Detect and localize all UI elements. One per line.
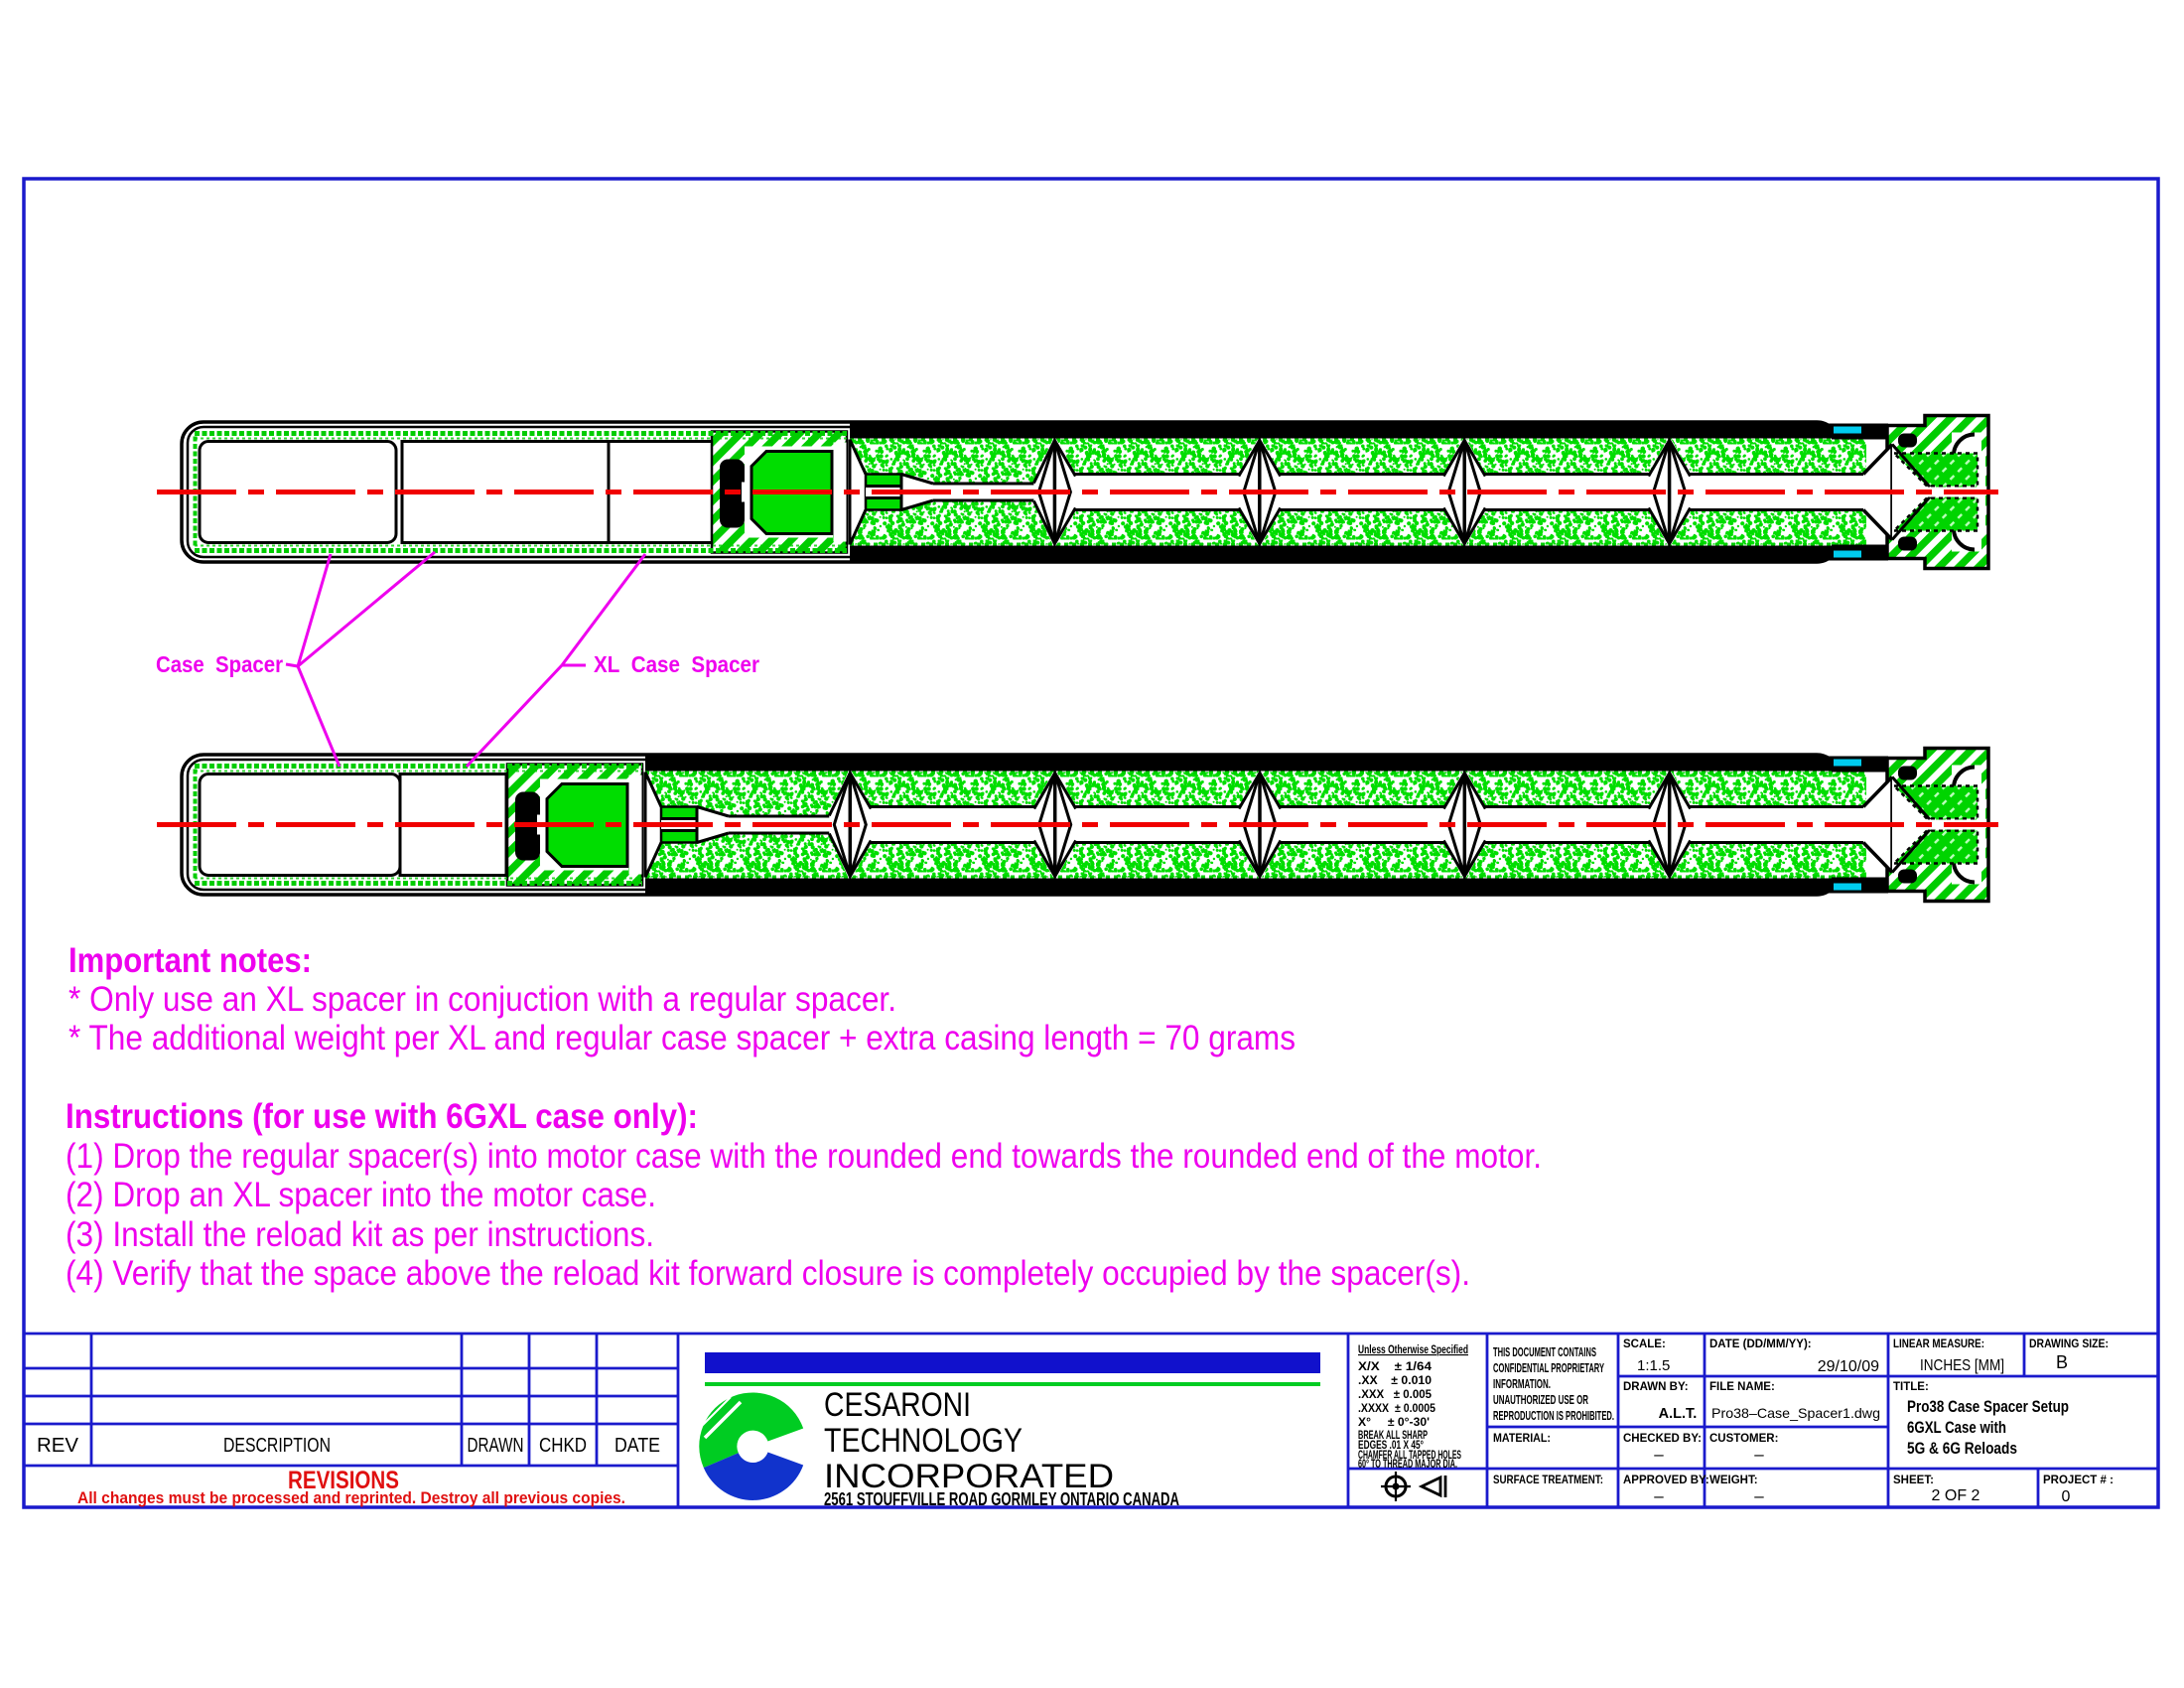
svg-text:Pro38–Case_Spacer1.dwg: Pro38–Case_Spacer1.dwg [1711,1405,1880,1421]
svg-text:CHECKED BY:: CHECKED BY: [1623,1433,1702,1445]
svg-text:DRAWING SIZE:: DRAWING SIZE: [2029,1338,2109,1350]
svg-text:SCALE:: SCALE: [1623,1338,1666,1350]
svg-text:APPROVED BY:: APPROVED BY: [1623,1475,1709,1486]
svg-text:(4) Verify that the space abov: (4) Verify that the space above the relo… [66,1254,1470,1293]
svg-text:60° TO THREAD MAJOR DIA.: 60° TO THREAD MAJOR DIA. [1358,1459,1457,1471]
svg-text:Unless Otherwise Specified: Unless Otherwise Specified [1358,1344,1468,1356]
svg-text:CONFIDENTIAL PROPRIETARY: CONFIDENTIAL PROPRIETARY [1493,1360,1604,1375]
svg-text:(2) Drop an XL spacer into the: (2) Drop an XL spacer into the motor cas… [66,1176,656,1214]
svg-text:MATERIAL:: MATERIAL: [1493,1433,1551,1445]
svg-text:–: – [1654,1486,1664,1505]
svg-text:INFORMATION.: INFORMATION. [1493,1376,1551,1391]
svg-text:CUSTOMER:: CUSTOMER: [1709,1433,1778,1445]
svg-text:B: B [2056,1352,2068,1372]
svg-text:TECHNOLOGY: TECHNOLOGY [824,1422,1023,1460]
svg-text:DRAWN BY:: DRAWN BY: [1623,1381,1689,1393]
svg-text:INCHES [MM]: INCHES [MM] [1920,1357,2004,1374]
svg-text:6GXL Case with: 6GXL Case with [1907,1418,2006,1437]
svg-text:X/X ± 1/64: X/X ± 1/64 [1358,1361,1433,1373]
svg-text:0: 0 [2062,1488,2071,1505]
svg-text:PROJECT # :: PROJECT # : [2043,1475,2114,1486]
svg-text:(1) Drop the regular spacer(s): (1) Drop the regular spacer(s) into moto… [66,1137,1542,1176]
svg-text:DRAWN: DRAWN [468,1435,524,1457]
svg-text:Important notes:: Important notes: [68,941,312,980]
svg-text:–: – [1754,1486,1764,1505]
svg-text:(3) Install the reload kit as: (3) Install the reload kit as per instru… [66,1215,654,1254]
svg-text:.XXX ± 0.005: .XXX ± 0.005 [1358,1389,1433,1401]
svg-text:UNAUTHORIZED USE OR: UNAUTHORIZED USE OR [1493,1392,1588,1407]
svg-text:DATE: DATE [614,1435,660,1457]
svg-text:X° ± 0°-30': X° ± 0°-30' [1358,1417,1430,1429]
svg-text:DESCRIPTION: DESCRIPTION [223,1435,331,1457]
svg-text:Pro38 Case Spacer Setup: Pro38 Case Spacer Setup [1907,1397,2069,1416]
svg-text:Instructions (for use with 6GX: Instructions (for use with 6GXL case onl… [66,1097,698,1136]
svg-text:SURFACE TREATMENT:: SURFACE TREATMENT: [1493,1475,1603,1486]
svg-text:THIS DOCUMENT CONTAINS: THIS DOCUMENT CONTAINS [1493,1344,1596,1359]
svg-text:Case Spacer: Case Spacer [156,651,283,677]
svg-text:–: – [1654,1445,1664,1464]
svg-text:DATE (DD/MM/YY):: DATE (DD/MM/YY): [1709,1338,1812,1350]
svg-text:All changes must be processed: All changes must be processed and reprin… [77,1488,625,1507]
svg-text:XL Case Spacer: XL Case Spacer [594,651,759,677]
svg-text:REV: REV [37,1435,79,1457]
svg-text:.XX ± 0.010: .XX ± 0.010 [1358,1375,1432,1387]
svg-text:WEIGHT:: WEIGHT: [1709,1475,1758,1486]
svg-text:CHKD: CHKD [539,1435,587,1457]
svg-text:FILE NAME:: FILE NAME: [1709,1381,1775,1393]
svg-text:2 OF 2: 2 OF 2 [1932,1487,1980,1504]
svg-text:1:1.5: 1:1.5 [1637,1357,1670,1374]
svg-text:* Only use an XL spacer in con: * Only use an XL spacer in conjuction wi… [68,980,896,1019]
svg-text:SHEET:: SHEET: [1893,1475,1934,1486]
svg-text:–: – [1754,1445,1764,1464]
svg-text:* The additional weight per XL: * The additional weight per XL and regul… [68,1019,1296,1057]
svg-text:2561 STOUFFVILLE ROAD GORMLEY: 2561 STOUFFVILLE ROAD GORMLEY ONTARIO CA… [824,1488,1179,1509]
svg-text:TITLE:: TITLE: [1893,1381,1929,1393]
svg-text:A.L.T.: A.L.T. [1659,1406,1698,1422]
svg-text:REPRODUCTION IS PROHIBITED.: REPRODUCTION IS PROHIBITED. [1493,1408,1614,1423]
svg-text:LINEAR MEASURE:: LINEAR MEASURE: [1893,1338,1984,1350]
svg-text:CESARONI: CESARONI [824,1386,971,1424]
svg-text:5G & 6G Reloads: 5G & 6G Reloads [1907,1439,2017,1458]
svg-text:29/10/09: 29/10/09 [1818,1358,1879,1375]
svg-text:.XXXX ± 0.0005: .XXXX ± 0.0005 [1358,1403,1436,1415]
